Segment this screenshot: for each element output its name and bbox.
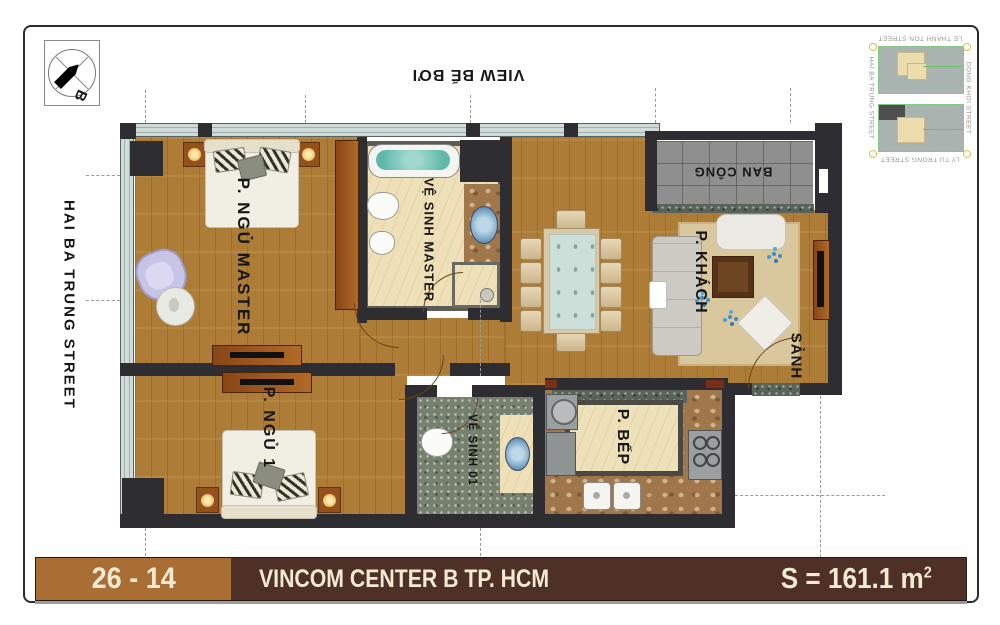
minimap-street-bottom: LY TU TRONG STREET — [880, 156, 959, 163]
minimap-block-south — [878, 104, 964, 152]
coffee-table-icon — [712, 256, 754, 298]
label-master-bedroom: P. NGỦ MASTER — [233, 178, 253, 337]
vanity-bath1 — [500, 415, 533, 493]
project-bar: VINCOM CENTER B TP. HCM S = 161.1 m2 — [231, 558, 966, 600]
label-master-bath: VỆ SINH MASTER — [422, 178, 437, 303]
label-hall: SẢNH — [788, 333, 805, 380]
minimap-street-right: DONG KHOI STREET — [965, 62, 972, 135]
appliance-icon — [546, 394, 578, 430]
master-bath-closet — [460, 140, 502, 182]
kitchen-sink-right — [613, 482, 641, 510]
bathtub-icon — [368, 144, 460, 178]
label-living: P. KHÁCH — [691, 230, 709, 313]
kitchen-left-wall — [533, 385, 545, 528]
minimap-block-north — [878, 46, 964, 94]
label-kitchen: P. BẾP — [613, 409, 631, 465]
kitchen-top-wall — [545, 378, 728, 390]
dining-table-icon — [543, 228, 600, 334]
street-label-left: HAI BA TRUNG STREET — [61, 200, 78, 410]
balcony-left-column — [645, 131, 657, 211]
ottoman-icon — [156, 287, 195, 326]
pool-view-label: VIEW BỂ BƠI — [412, 65, 525, 83]
label-balcony: BAN CÔNG — [694, 165, 773, 180]
dining-floor-top — [505, 137, 655, 217]
kitchen-right-wall — [722, 385, 735, 528]
tv-console-master — [212, 345, 302, 366]
unit-number: 26 - 14 — [91, 562, 175, 596]
balcony-threshold — [652, 204, 814, 213]
tv-console-living — [813, 240, 830, 320]
sink-icon-bath1 — [505, 437, 530, 471]
nightstand-icon — [196, 487, 219, 513]
area-value: S = 161.1 m2 — [781, 563, 932, 596]
balcony-front-wall — [648, 131, 840, 140]
vanity-master — [464, 184, 502, 270]
nightstand-icon — [318, 487, 341, 513]
master-bath-right-wall — [500, 137, 512, 322]
label-bath1: VỆ SINH 01 — [466, 414, 478, 486]
column-bedroom1 — [122, 478, 164, 528]
bottom-wall — [120, 514, 735, 528]
project-name: VINCOM CENTER B TP. HCM — [259, 565, 549, 594]
floorplan-page: B VIEW BỂ BƠI HAI BA TRUNG STREET LE THA… — [0, 0, 1000, 625]
kitchen-sink-left — [583, 482, 611, 510]
label-bedroom1: P. NGỦ 1 — [259, 387, 277, 469]
minimap-street-top: LE THANH TON STREET — [878, 35, 962, 42]
kitchen-cabinet — [546, 432, 576, 476]
left-glass-wall — [120, 123, 134, 528]
cooktop-icon — [688, 430, 722, 480]
nightstand-icon — [297, 142, 320, 167]
sink-icon-master — [470, 206, 498, 244]
site-minimap: LE THANH TON STREET LY TU TRONG STREET H… — [858, 28, 974, 170]
nightstand-icon — [183, 142, 206, 167]
compass: B — [44, 40, 100, 106]
daybed-icon — [716, 214, 786, 250]
unit-badge: 26 - 14 — [36, 558, 231, 600]
minimap-street-left: HAI BA TRUNG STREET — [868, 57, 875, 140]
title-bar: 26 - 14 VINCOM CENTER B TP. HCM S = 161.… — [35, 557, 967, 601]
wardrobe-master — [335, 140, 359, 310]
toilet-icon-master — [367, 192, 399, 220]
bidet-icon-master — [369, 231, 395, 255]
column-master — [130, 141, 163, 176]
